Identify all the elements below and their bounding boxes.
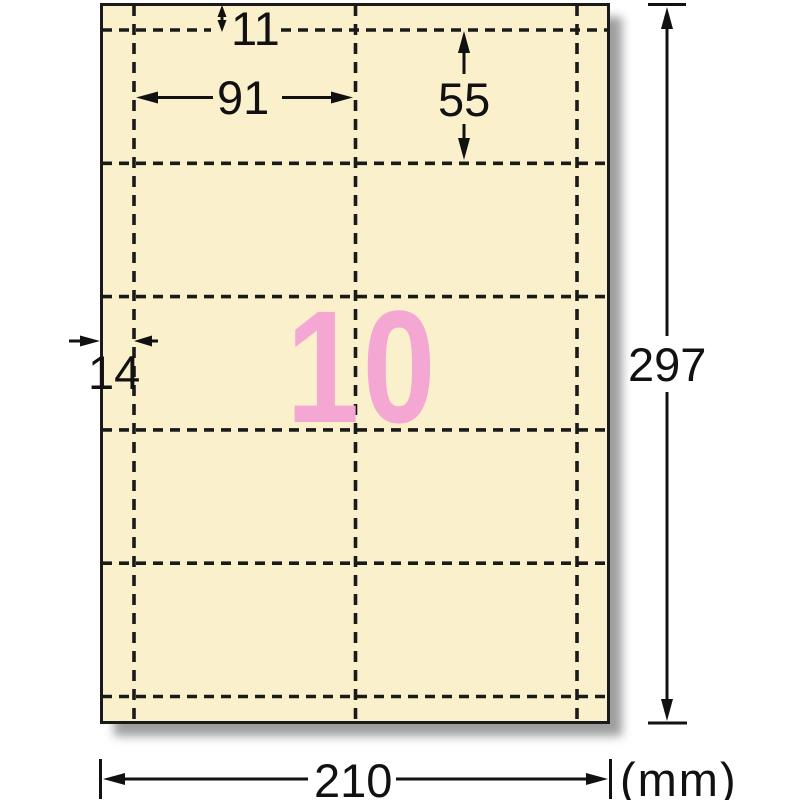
dimension-label-card-width: 91 xyxy=(217,74,269,121)
diagram-canvas: 10 11 91 55 14 297 210 (mm) xyxy=(0,0,800,800)
dimension-label-sheet-height: 297 xyxy=(628,341,706,388)
dimension-label-sheet-width: 210 xyxy=(314,757,392,800)
labels-per-sheet-count: 10 xyxy=(286,287,425,447)
dimension-label-top-margin: 11 xyxy=(231,5,280,52)
dimension-label-card-height: 55 xyxy=(438,76,490,123)
unit-label: (mm) xyxy=(620,756,738,800)
dimension-label-side-margin: 14 xyxy=(88,349,140,396)
